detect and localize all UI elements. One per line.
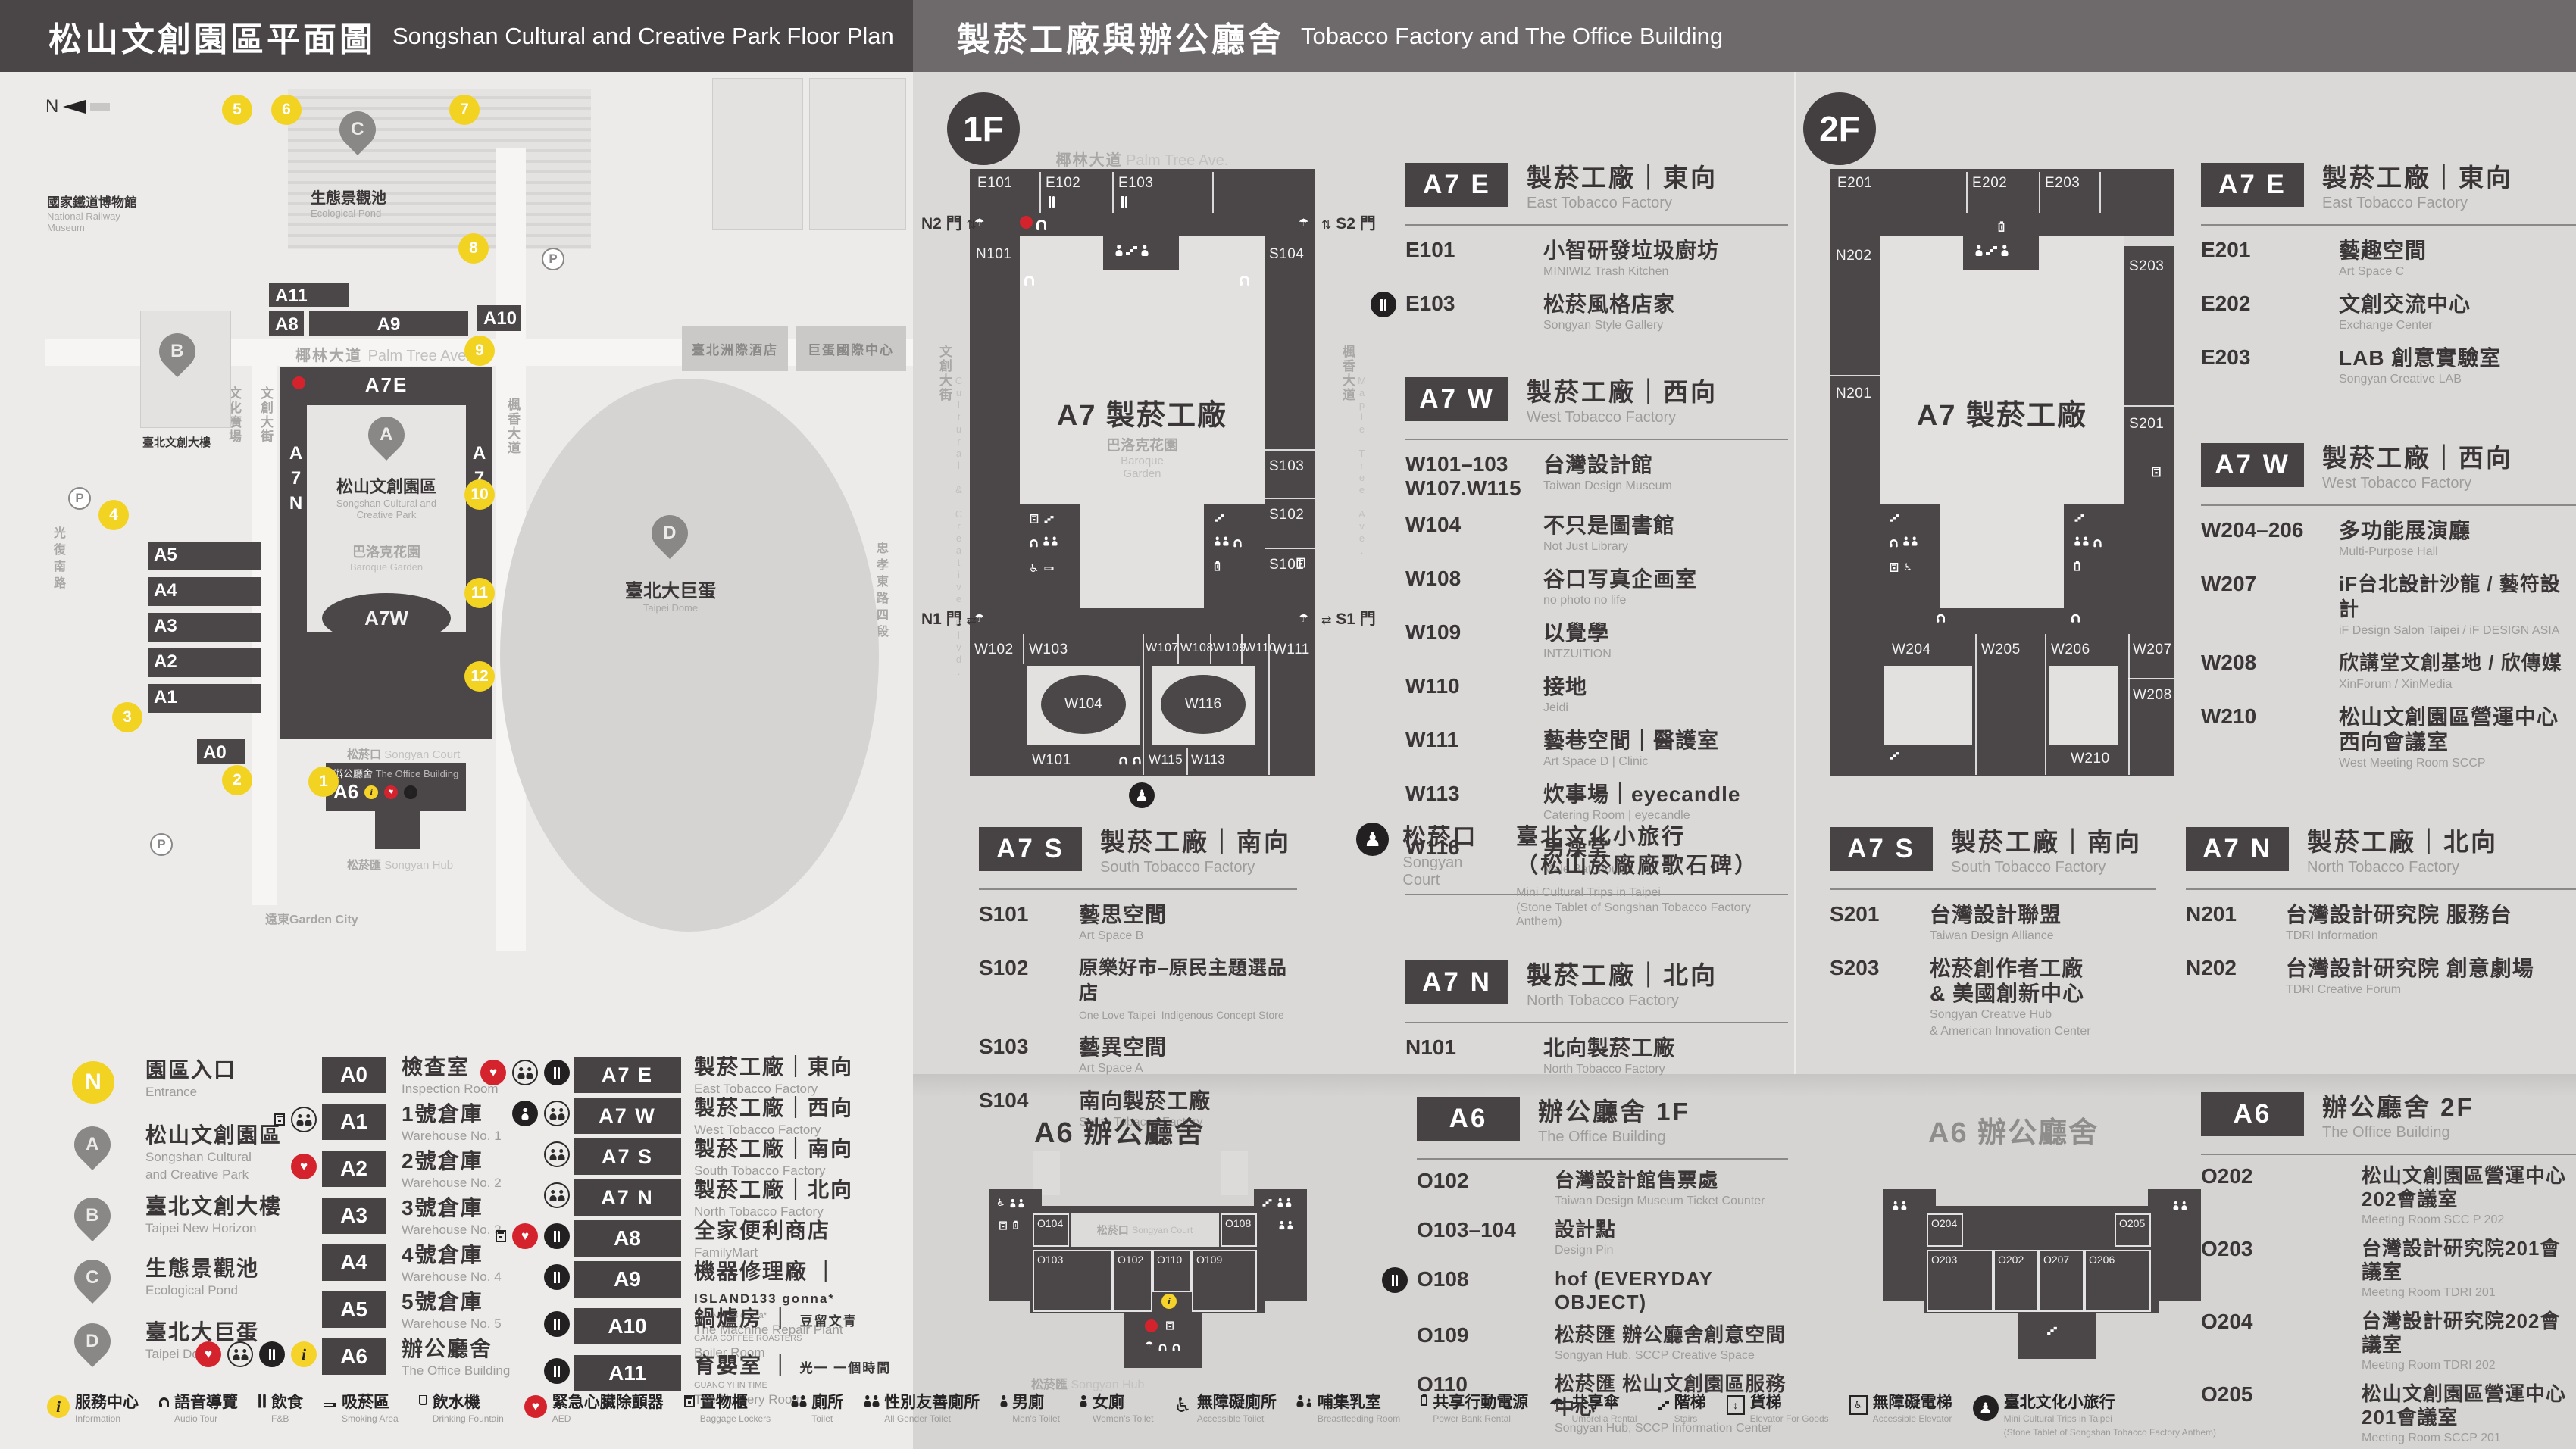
hotel-intercontinental: 臺北洲際酒店 — [682, 326, 788, 371]
list-item: S101藝思空間Art Space B — [979, 902, 1297, 944]
floor-2f-label: 2F — [1819, 108, 1860, 149]
pin-d-letter: D — [663, 523, 676, 544]
a6-map-title-2f: A6 辦公廳舍 — [1928, 1109, 2099, 1151]
floor-plan-poster: 松山文創園區平面圖 Songshan Cultural and Creative… — [0, 0, 2576, 1449]
facility-accessible-toilet: ♿無障礙廁所Accessible Toilet — [1174, 1394, 1277, 1426]
fac-zh: 語音導覽 — [174, 1394, 238, 1411]
badge-a7w: A7 W — [1405, 377, 1508, 421]
list-item: W101–103W107.W115台灣設計館Taiwan Design Muse… — [1405, 452, 1788, 501]
hub-map-zh: 松菸匯 — [347, 859, 381, 872]
new-horizon-label: 臺北文創大樓 — [142, 434, 211, 450]
section-1f-a7w: A7 W製菸工廠｜西向West Tobacco Factory W101–103… — [1405, 377, 1788, 898]
umbrella-icon: ☂ — [1299, 216, 1308, 230]
room-o203-label: O203 — [1931, 1254, 1957, 1266]
fac-en: AED — [552, 1413, 571, 1424]
a6-stem-2f — [2018, 1313, 2096, 1359]
code: O102 — [1417, 1169, 1546, 1193]
park-a-en1: Songshan Cultural and — [307, 498, 466, 509]
info-icon: i — [291, 1341, 317, 1367]
restaurant-icon — [1121, 196, 1128, 208]
room-o103-label: O103 — [1037, 1254, 1063, 1266]
info-icon: i — [1161, 1294, 1177, 1309]
en: Art Space B — [1079, 929, 1297, 944]
divider — [1265, 548, 1315, 549]
room-n202: N202 — [1836, 248, 1871, 264]
legend-a1-zh: 1號倉庫 — [402, 1102, 502, 1126]
building-a3: A3 — [148, 613, 261, 642]
title-zh: 製菸工廠｜東向 — [2322, 163, 2513, 193]
restaurant-icon — [1048, 196, 1055, 208]
legend-badge-a8: A8 — [574, 1220, 681, 1257]
title-en: East Tobacco Factory — [1527, 195, 1718, 212]
building-a11-label: A11 — [269, 283, 314, 310]
title-en: North Tobacco Factory — [2307, 859, 2498, 876]
legend-row-a8: 全家便利商店FamilyMart — [694, 1219, 830, 1260]
divider — [2099, 172, 2101, 213]
title-zh: 製菸工廠｜北向 — [1527, 960, 1718, 991]
room-e101: E101 — [977, 175, 1012, 192]
neighbor-building — [809, 78, 906, 230]
en: INTZUITION — [1543, 647, 1788, 662]
building-a1: A1 — [148, 684, 261, 713]
divider — [2045, 634, 2046, 775]
zh: 藝趣空間 — [2339, 239, 2427, 262]
zh: 藝異空間 — [1079, 1035, 1167, 1059]
code: N202 — [2186, 956, 2277, 980]
room-o108-label: O108 — [1225, 1217, 1251, 1229]
entrance-3: 3 — [112, 702, 142, 732]
toilet-icon — [512, 1060, 538, 1085]
west-inner-court-2f — [1884, 666, 1972, 745]
railway-museum-en: National Railway Museum — [47, 211, 161, 233]
room-o104-label: O104 — [1037, 1217, 1063, 1229]
hub-label: 松菸匯 Songyan Hub — [1031, 1374, 1144, 1392]
info-icon: i — [47, 1395, 70, 1418]
legend: N 園區入口Entrance A 松山文創園區Songshan Cultural… — [45, 1057, 913, 1386]
list-item: W207iF台北設計沙龍 / 藝符設計iF Design Salon Taipe… — [2201, 572, 2576, 639]
building-a9: A9 — [309, 311, 468, 336]
fac-en: Women's Toilet — [1093, 1413, 1154, 1424]
code: E101 — [1405, 238, 1534, 262]
fac-en: Baggage Lockers — [700, 1413, 771, 1424]
restaurant-icon — [544, 1223, 570, 1249]
divider — [1830, 375, 1880, 376]
stem-icons — [2046, 1326, 2058, 1335]
a7-center-label: 松山文創園區 Songshan Cultural and Creative Pa… — [307, 473, 466, 573]
dome-label: 臺北大巨蛋 Taipei Dome — [576, 576, 765, 614]
rule — [2201, 1154, 2576, 1155]
court-en: Songyan Court — [1402, 854, 1502, 889]
service-icons — [1214, 513, 1225, 523]
fac-en: Smoking Area — [342, 1413, 399, 1424]
code: W210 — [2201, 704, 2330, 729]
right-title-en: Tobacco Factory and The Office Building — [1301, 23, 1723, 50]
aed-dot — [292, 376, 305, 389]
lockers-icon — [1296, 557, 1306, 569]
service-icons — [1214, 536, 1243, 547]
fac-en: Accessible Toilet — [1197, 1413, 1265, 1424]
zh: 台灣設計研究院201會議室 — [2362, 1237, 2560, 1283]
badge-a7w-2f: A7 W — [2201, 443, 2304, 487]
wing-icons: ♿ — [996, 1197, 1024, 1209]
pond-zh: 生態景觀池 — [311, 190, 386, 207]
legend-a1-code: A1 — [340, 1110, 367, 1134]
legend-a2-icons: ♥ — [273, 1154, 317, 1179]
facility-accessible-elevator: ♿無障礙電梯Accessible Elevator — [1849, 1394, 1952, 1426]
legend-a2-en: Warehouse No. 2 — [402, 1175, 502, 1191]
umbrella-icon: ☂ — [974, 216, 984, 230]
legend-a7e-zh: 製菸工廠｜東向 — [694, 1055, 853, 1079]
baroque-label: 巴洛克花園 Baroque Garden — [1020, 434, 1265, 480]
title-zh: 辦公廳舍 2F — [2322, 1092, 2474, 1123]
room-n201: N201 — [1836, 386, 1871, 402]
list-item: S203松菸創作者工廠& 美國創新中心Songyan Creative Hub&… — [1830, 956, 2156, 1039]
building-a3-label: A3 — [148, 613, 183, 640]
code: O204 — [2201, 1310, 2352, 1334]
maple-label-1f: 楓香大道 — [1338, 345, 1357, 402]
en: TDRI Information — [2286, 929, 2576, 944]
entrance-12: 12 — [464, 661, 495, 692]
legend-row-a10: 鍋爐房 ｜ 豆留文青CAMA COFFEE ROASTERSBoiler Roo… — [694, 1307, 858, 1360]
code2: W107.W115 — [1405, 476, 1521, 500]
section-1f-a6: A6辦公廳舍 1FThe Office Building O102台灣設計館售票… — [1417, 1097, 1788, 1436]
title-zh: 辦公廳舍 1F — [1538, 1097, 1690, 1127]
section-2f-a7e: A7 E製菸工廠｜東向East Tobacco Factory E201藝趣空間… — [2201, 163, 2576, 387]
list-item: E101小智研發垃圾廚坊MINIWIZ Trash Kitchen — [1405, 238, 1788, 279]
baroque-zh: 巴洛克花園 — [1020, 434, 1265, 454]
room-o206-label: O206 — [2089, 1254, 2115, 1266]
legend-a7w-en: West Tobacco Factory — [694, 1122, 853, 1138]
service-icons — [2074, 513, 2085, 523]
parking-icon: P — [150, 833, 173, 856]
fac-en: Information — [75, 1413, 120, 1424]
audio-icons — [1118, 754, 1142, 764]
legend-a8-zh: 全家便利商店 — [694, 1219, 830, 1243]
toilet-icon — [544, 1182, 570, 1208]
legend-a1-icons — [241, 1107, 317, 1132]
legend-a7w-code: A7 W — [599, 1104, 656, 1128]
legend-pin-c: C — [67, 1252, 118, 1304]
legend-badge-a10: A10 — [574, 1308, 681, 1344]
map-1f: 椰林大道 Palm Tree Ave. E101 E102 E103 N2 門 … — [970, 148, 1318, 799]
lockers-icon — [2151, 466, 2162, 478]
wing-icons — [1261, 1197, 1292, 1208]
divider — [1039, 172, 1041, 213]
en: Multi-Purpose Hall — [2339, 545, 2576, 560]
breastfeeding-icon — [1297, 1395, 1312, 1407]
facility-womens-toilet: 女廁Women's Toilet — [1080, 1394, 1154, 1426]
restaurant-icon — [544, 1264, 570, 1290]
legend-badge-a7n: A7 N — [574, 1179, 681, 1216]
taipei-dome-shape — [500, 379, 879, 932]
divider — [1212, 172, 1214, 213]
legend-a6-zh: 辦公廳舍 — [402, 1337, 510, 1361]
garden-city-label: 遠東Garden City — [265, 909, 358, 927]
drinking-fountain-icon — [419, 1395, 427, 1405]
toilet-icon — [544, 1141, 570, 1167]
south-corridor-2f — [1830, 608, 2174, 632]
lockers-icon — [274, 1113, 285, 1126]
anthem-statue-icon: ♟ — [1129, 782, 1155, 808]
hub-en: Songyan Hub — [1071, 1379, 1144, 1391]
statue-icon: ♟ — [1973, 1395, 1999, 1421]
legend-a7e-en: East Tobacco Factory — [694, 1081, 853, 1097]
zh: 藝巷空間｜醫護室 — [1543, 729, 1719, 752]
divider — [2128, 634, 2130, 775]
building-a0: A0 — [197, 739, 245, 764]
code: N201 — [2186, 902, 2277, 926]
code: W111 — [1405, 728, 1534, 752]
legend-a7n-icons — [535, 1182, 570, 1208]
a6-label-row: A6 i ♥ — [326, 780, 466, 804]
legend-pin-c-letter: C — [86, 1267, 98, 1288]
park-a-en2: Creative Park — [307, 509, 466, 520]
gate-n1: N1 門 ⇄ — [921, 607, 977, 629]
list-item: N201台灣設計研究院 服務台TDRI Information — [2186, 902, 2576, 944]
legend-row-a1: 1號倉庫Warehouse No. 1 — [402, 1102, 502, 1144]
fac-zh: 飲水機 — [433, 1394, 480, 1411]
rule — [1405, 439, 1788, 440]
fac-en: All Gender Toilet — [884, 1413, 951, 1424]
entrance-5: 5 — [222, 95, 252, 125]
title-en: South Tobacco Factory — [1100, 859, 1291, 876]
entrance-2: 2 — [222, 765, 252, 795]
building-a10-label: A10 — [477, 305, 523, 333]
building-a4-label: A4 — [148, 577, 183, 604]
legend-badge-a2: A2 — [322, 1151, 386, 1187]
fac-zh: 女廁 — [1093, 1394, 1124, 1411]
service-icons — [1889, 536, 1918, 547]
building-a9-label: A9 — [371, 311, 407, 339]
smoking-icon — [324, 1403, 336, 1407]
legend-a7s-en: South Tobacco Factory — [694, 1163, 853, 1179]
room-o207: O207 — [2039, 1250, 2084, 1312]
wing-icons — [998, 1219, 1019, 1232]
a6-map-2f: A6 辦公廳舍 O204 O205 O203 O202 O207 O206 — [1883, 1100, 2201, 1384]
lockers-icon — [684, 1395, 695, 1407]
room-w206: W206 — [2051, 642, 2090, 658]
room-w115: W115 — [1149, 752, 1183, 767]
east-service-tab-2f — [2064, 504, 2124, 608]
legend-badge-a7e: A7 E — [574, 1057, 681, 1093]
fac-zh: 男廁 — [1012, 1394, 1044, 1411]
court-title1: 臺北文化小旅行 — [1516, 823, 1796, 851]
legend-a11-sub2: GUANG YI IN TIME — [694, 1381, 891, 1390]
baroque-en2: Garden — [1020, 467, 1265, 480]
code: O103–104 — [1417, 1218, 1546, 1242]
legend-a7n-code: A7 N — [601, 1186, 654, 1210]
east-inner-court-2f — [2049, 666, 2118, 745]
badge-a7e-2f: A7 E — [2201, 163, 2304, 207]
park-map: N 國家鐵道博物館 National Railway Museum C 生態景觀… — [45, 72, 913, 1057]
room-o206: O206 — [2084, 1250, 2151, 1312]
left-header: 松山文創園區平面圖 Songshan Cultural and Creative… — [0, 0, 913, 72]
list-item: E203LAB 創意實驗室Songyan Creative LAB — [2201, 345, 2576, 387]
legend-pin-d: D — [67, 1316, 118, 1367]
cc-blvd-label-1f: 文創大街 — [935, 345, 954, 402]
legend-row-a2: 2號倉庫Warehouse No. 2 — [402, 1149, 502, 1191]
code: E202 — [2201, 292, 2330, 316]
en: XinForum / XinMedia — [2339, 677, 2576, 692]
list-item: O103–104設計點Design Pin — [1417, 1218, 1788, 1258]
list-item: W111藝巷空間｜醫護室Art Space D | Clinic — [1405, 728, 1788, 770]
entrance-10: 10 — [464, 479, 495, 510]
badge-a6-2f: A6 — [2201, 1092, 2304, 1136]
palm-ave-label: 椰林大道 Palm Tree Ave. — [295, 343, 470, 365]
en: Art Space A — [1079, 1061, 1297, 1076]
zh: hof (EVERYDAY OBJECT) — [1555, 1267, 1713, 1313]
entrance-6: 6 — [271, 95, 302, 125]
room-o109: O109 — [1192, 1250, 1257, 1312]
audio-icon — [1036, 217, 1046, 227]
left-title-zh: 松山文創園區平面圖 — [48, 12, 376, 61]
room-e102: E102 — [1046, 175, 1080, 192]
room-e202: E202 — [1972, 175, 2007, 192]
en: West Meeting Room SCCP — [2339, 756, 2576, 771]
park-a-zh: 松山文創園區 — [307, 473, 466, 498]
legend-a-en2: and Creative Park — [145, 1166, 282, 1182]
building-a10: A10 — [477, 305, 521, 331]
list-item: S201台灣設計聯盟Taiwan Design Alliance — [1830, 902, 2156, 944]
zh: iF台北設計沙龍 / 藝符設計 — [2339, 573, 2561, 620]
legend-a10-icons — [535, 1311, 570, 1337]
a6-map-title: A6 辦公廳舍 — [1034, 1109, 1205, 1151]
service-icons — [1029, 536, 1058, 547]
map-2f: E201 E202 E203 N202 N201 S203 S201 A7 製菸… — [1830, 148, 2178, 799]
legend-badge-a7s: A7 S — [574, 1138, 681, 1175]
room-o103: O103 — [1033, 1250, 1113, 1312]
legend-a10-sub: 豆留文青 — [800, 1314, 858, 1329]
fac-zh: 無障礙廁所 — [1197, 1394, 1277, 1411]
title-zh: 製菸工廠｜南向 — [1100, 827, 1291, 857]
fac-en: Drinking Fountain — [433, 1413, 504, 1424]
parking-icon: P — [542, 248, 564, 270]
building-a5-label: A5 — [148, 542, 183, 569]
a7e-map-label: A7E — [280, 373, 492, 397]
list-item: W210松山文創園區營運中心西向會議室West Meeting Room SCC… — [2201, 704, 2576, 771]
baroque-zh: 巴洛克花園 — [307, 542, 466, 561]
badge-a7s: A7 S — [979, 827, 1082, 871]
toilet-icon — [227, 1341, 253, 1367]
room-w104: W104 — [1064, 696, 1102, 713]
toilet-icons — [1975, 245, 2008, 256]
facility-lockers: 置物櫃Baggage Lockers — [684, 1394, 771, 1426]
legend-row-a7e: 製菸工廠｜東向East Tobacco Factory — [694, 1055, 853, 1097]
code: W208 — [2201, 651, 2330, 675]
legend-badge-a1: A1 — [322, 1104, 386, 1140]
room-o207-label: O207 — [2043, 1254, 2069, 1266]
fac-zh: 哺集乳室 — [1318, 1394, 1381, 1411]
audio-tour-icon — [159, 1395, 169, 1405]
facility-aed: ♥緊急心臟除顫器AED — [524, 1394, 664, 1426]
umbrella-icon: ☂ — [974, 611, 984, 625]
room-w113: W113 — [1191, 752, 1225, 767]
service-icons — [1214, 561, 1221, 572]
aed-icon: ♥ — [384, 785, 398, 799]
zh: 松山文創園區營運中心 — [2339, 705, 2559, 729]
legend-row-a4: 4號倉庫Warehouse No. 4 — [402, 1243, 502, 1285]
pin-c-letter: C — [351, 119, 364, 140]
service-icons — [1889, 513, 1900, 523]
zh: LAB 創意實驗室 — [2339, 346, 2501, 370]
legend-a4-code: A4 — [340, 1251, 367, 1275]
service-icons: ♿ — [1889, 561, 1912, 573]
fac-zh: 無障礙電梯 — [1873, 1394, 1952, 1411]
legend-row-c: 生態景觀池Ecological Pond — [145, 1257, 259, 1298]
toilet-icon — [791, 1395, 806, 1407]
divider — [1241, 634, 1243, 664]
a6-court-en: Songyan Court — [1132, 1225, 1193, 1235]
title-zh: 製菸工廠｜南向 — [1951, 827, 2142, 857]
mens-toilet-icon — [1000, 1395, 1007, 1407]
legend-a4-en: Warehouse No. 4 — [402, 1269, 502, 1285]
gate-s1-label: S1 門 — [1336, 611, 1376, 628]
en: Songyan Hub, SCCP Information Center — [1555, 1421, 1788, 1436]
restaurant-icon — [404, 785, 417, 799]
palm-ave-zh: 椰林大道 — [295, 348, 362, 364]
divider — [1023, 634, 1024, 664]
legend-badge-a0: A0 — [322, 1057, 386, 1093]
a7w-oval: A7W — [322, 593, 451, 643]
legend-entrance-en: Entrance — [145, 1084, 236, 1100]
legend-pin-b: B — [67, 1190, 118, 1241]
wing-icons — [1892, 1200, 1907, 1211]
zh: 文創交流中心 — [2339, 292, 2471, 316]
en: MINIWIZ Trash Kitchen — [1543, 264, 1788, 279]
list-item: N101北向製菸工廠North Tobacco Factory — [1405, 1035, 1788, 1077]
divider — [2039, 172, 2040, 213]
legend-a7w-zh: 製菸工廠｜西向 — [694, 1096, 853, 1120]
south-corridor — [970, 608, 1315, 632]
fac-en: F&B — [271, 1413, 289, 1424]
building-a6-stem — [375, 811, 420, 849]
fac-en: Mini Cultural Trips in Taipei — [2004, 1413, 2112, 1424]
room-w111: W111 — [1273, 642, 1310, 658]
restaurant-icon — [258, 1395, 266, 1407]
room-o102: O102 — [1113, 1250, 1152, 1312]
compass: N — [45, 96, 110, 117]
fac-zh: 置物櫃 — [700, 1394, 748, 1411]
court-en2: (Stone Tablet of Songshan Tobacco Factor… — [1516, 901, 1796, 929]
list-item: O202松山文創園區營運中心202會議室Meeting Room SCC P 2… — [2201, 1164, 2576, 1228]
east-service-tab — [1204, 504, 1265, 608]
room-s103: S103 — [1269, 458, 1304, 475]
code: W110 — [1405, 674, 1534, 698]
zh: 松菸創作者工廠 — [1930, 957, 2084, 980]
dome-en: Taipei Dome — [576, 602, 765, 614]
aed-icon: ♥ — [480, 1060, 506, 1085]
room-w108: W108 — [1180, 642, 1214, 655]
code: W104 — [1405, 513, 1534, 537]
en: Art Space C — [2339, 264, 2576, 279]
a6-office-en: The Office Building — [376, 768, 459, 779]
title-en: South Tobacco Factory — [1951, 859, 2142, 876]
legend-a9-sub: ISLAND133 gonna* — [694, 1291, 835, 1306]
aed-dot — [1145, 1319, 1158, 1332]
zh: 松山文創園區營運中心201會議室 — [2362, 1382, 2566, 1429]
a7n-map-label: A7N — [285, 443, 306, 518]
taipei-new-horizon-building — [140, 311, 231, 428]
railway-museum-zh: 國家鐵道博物館 — [47, 192, 161, 211]
audio-tour-icon — [512, 1101, 538, 1126]
legend-a10-code: A10 — [608, 1314, 646, 1338]
code: O203 — [2201, 1237, 2352, 1261]
legend-b-zh: 臺北文創大樓 — [145, 1194, 282, 1219]
audio-icon — [2071, 611, 2080, 621]
a7w-map-label: A7W — [364, 607, 408, 630]
pond-en: Ecological Pond — [311, 208, 386, 219]
compass-n-label: N — [45, 96, 58, 117]
